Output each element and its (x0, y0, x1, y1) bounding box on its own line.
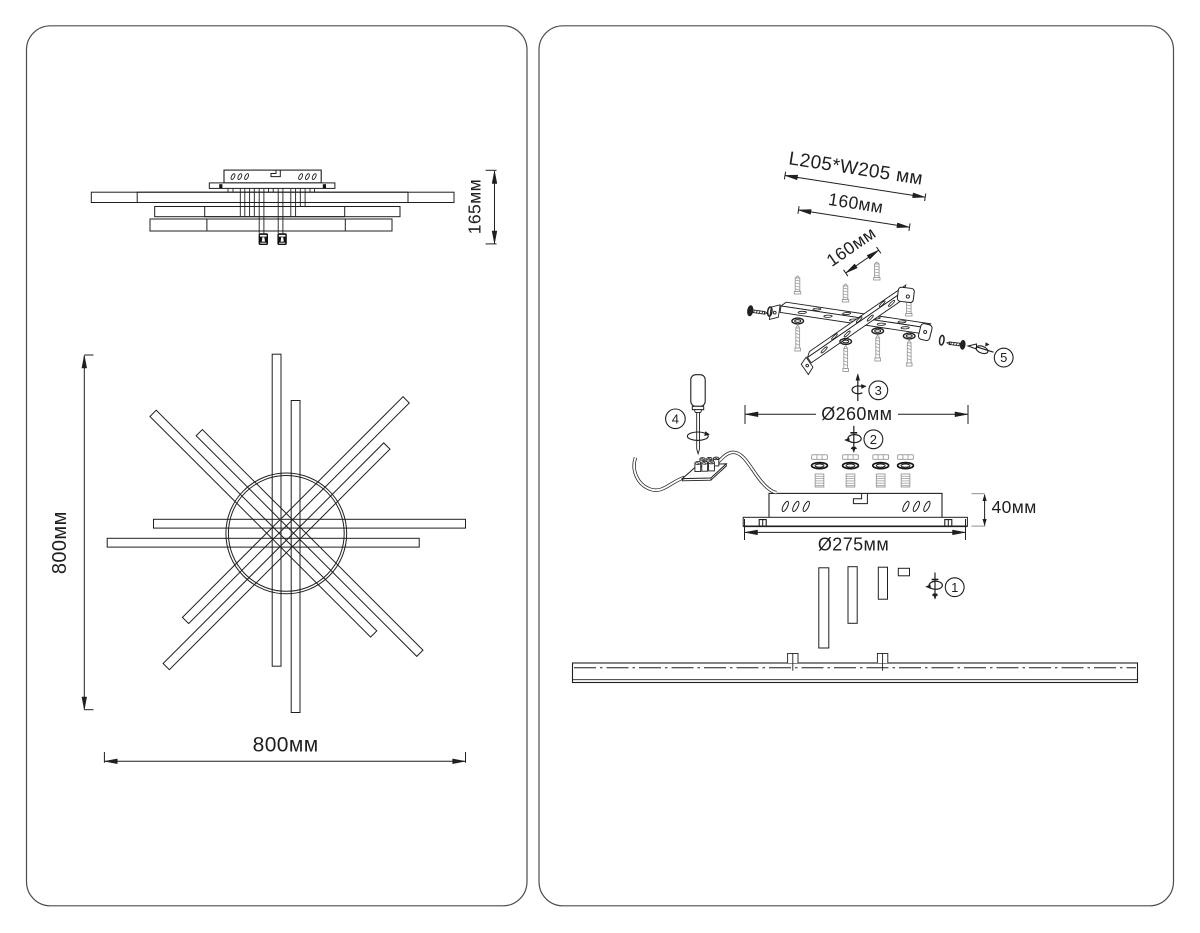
svg-text:165мм: 165мм (465, 179, 485, 234)
svg-text:5: 5 (1000, 350, 1007, 365)
svg-text:Ø260мм: Ø260мм (821, 404, 892, 424)
svg-text:3: 3 (875, 383, 882, 398)
svg-text:1: 1 (951, 580, 958, 595)
svg-text:Ø275мм: Ø275мм (818, 535, 889, 555)
svg-text:800мм: 800мм (49, 511, 71, 574)
svg-text:800мм: 800мм (253, 734, 319, 757)
svg-text:2: 2 (870, 432, 877, 447)
svg-text:4: 4 (672, 411, 679, 426)
svg-text:40мм: 40мм (992, 497, 1037, 517)
